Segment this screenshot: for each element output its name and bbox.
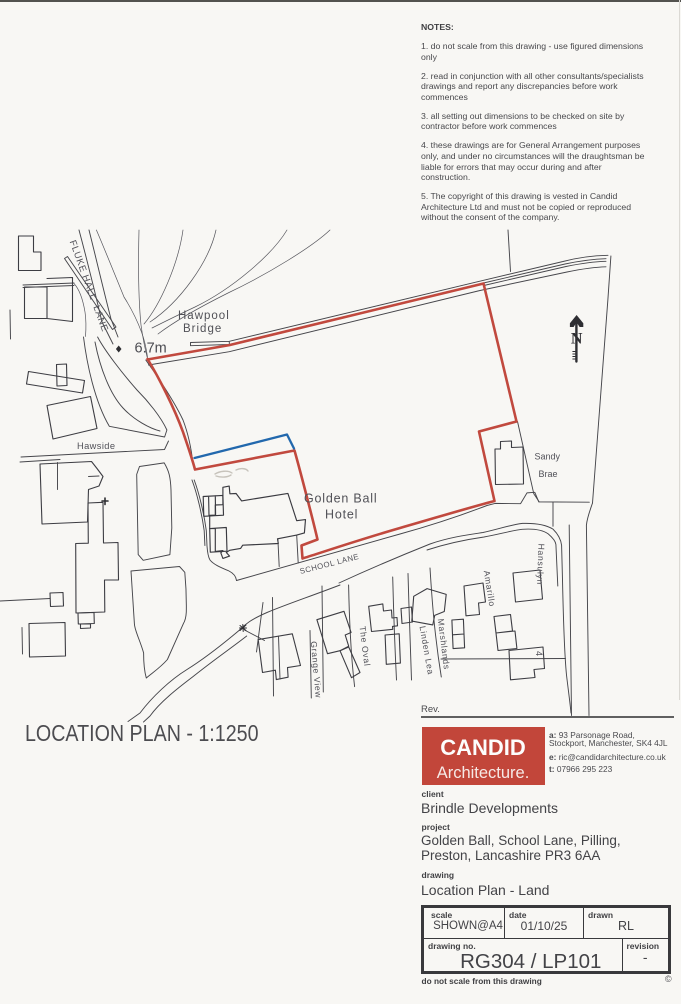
svg-text:Hansulyn: Hansulyn [535, 543, 546, 585]
svg-text:4: 4 [534, 651, 544, 656]
svg-text:The Oval: The Oval [358, 626, 373, 667]
svg-text:Brae: Brae [539, 469, 558, 479]
svg-text:Sandy: Sandy [535, 452, 561, 462]
svg-text:Marshlands: Marshlands [436, 618, 452, 670]
svg-text:Linden Lea: Linden Lea [418, 625, 436, 676]
svg-text:6.7m: 6.7m [135, 341, 167, 357]
svg-text:N: N [571, 331, 583, 348]
svg-text:Bridge: Bridge [183, 323, 222, 335]
svg-text:Hawside: Hawside [77, 441, 115, 451]
svg-text:Golden Ball: Golden Ball [304, 492, 377, 506]
svg-text:Hawpool: Hawpool [178, 310, 230, 322]
svg-text:Hotel: Hotel [325, 508, 358, 522]
svg-text:FLUKE HALL LANE: FLUKE HALL LANE [67, 239, 110, 334]
